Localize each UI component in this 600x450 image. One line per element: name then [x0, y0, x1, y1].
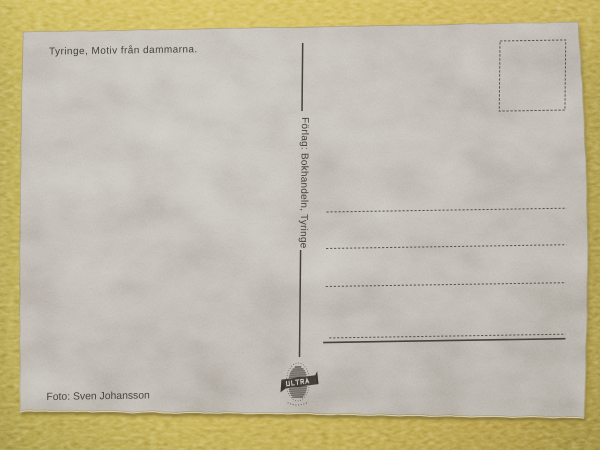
svg-text:Foto: Sven Johansson: Foto: Sven Johansson — [46, 390, 150, 403]
svg-text:Förlag: Bokhandeln, Tyringe: Förlag: Bokhandeln, Tyringe — [298, 117, 310, 249]
svg-text:Tyringe, Motiv från dammarna.: Tyringe, Motiv från dammarna. — [49, 43, 198, 57]
